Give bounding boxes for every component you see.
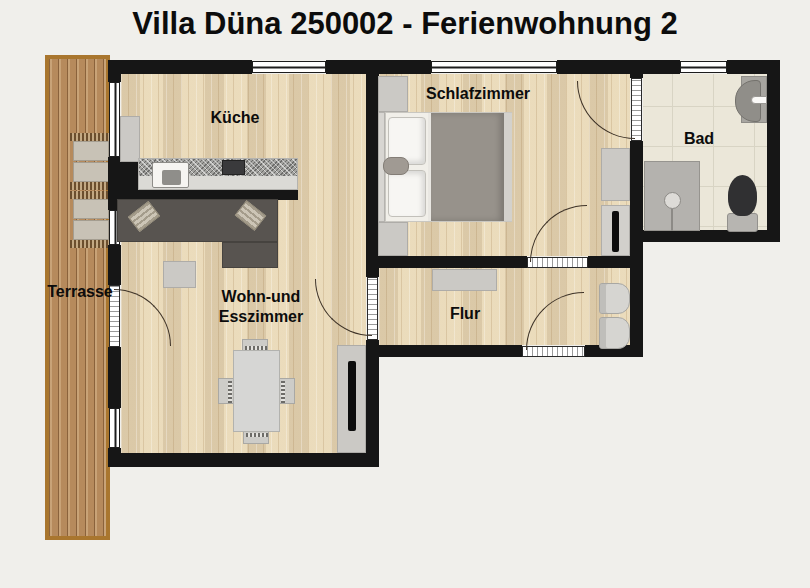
bedroom-label: Schlafzimmer <box>408 84 548 104</box>
dining-chair <box>279 378 295 404</box>
cooktop <box>222 160 245 175</box>
sofa-chaise <box>222 242 278 268</box>
window <box>109 408 120 448</box>
living-label-line2: Esszimmer <box>191 307 331 327</box>
outdoor-sofa <box>70 191 112 248</box>
bed-pillow <box>388 170 426 217</box>
wall <box>108 60 121 82</box>
kitchen-cabinet <box>120 116 140 162</box>
dining-chair <box>243 431 269 444</box>
bed-footboard <box>504 113 512 221</box>
wall <box>366 340 379 467</box>
nightstand <box>378 222 408 256</box>
wall <box>630 60 643 78</box>
nightstand <box>378 76 408 112</box>
coffee-table <box>163 261 196 288</box>
dining-table <box>233 350 280 432</box>
plan-title: Villa Düna 250002 - Ferienwohnung 2 <box>0 6 810 42</box>
tv <box>348 361 356 431</box>
window <box>252 61 326 73</box>
window <box>431 61 557 73</box>
shower <box>644 161 700 231</box>
bed <box>378 112 512 222</box>
kitchen-label: Küche <box>185 108 285 128</box>
bed-blanket <box>428 113 504 221</box>
faucet <box>751 96 767 104</box>
wall <box>108 60 252 74</box>
wall <box>630 230 780 242</box>
outdoor-sofa-cushion <box>73 220 109 240</box>
shower-head <box>664 192 681 209</box>
wall <box>630 141 643 357</box>
wall <box>108 453 378 467</box>
living-label: Wohn-und Esszimmer <box>191 287 331 327</box>
outdoor-sofa-frame <box>70 133 112 141</box>
dining-chair <box>218 378 234 404</box>
outdoor-sofa <box>70 133 112 190</box>
kitchen-sink-basin <box>162 170 181 185</box>
kitchen-sink <box>152 162 189 188</box>
wardrobe <box>601 148 630 201</box>
wall <box>366 256 527 268</box>
outdoor-sofa-cushion <box>73 162 109 182</box>
hallway-chair <box>599 317 630 349</box>
hallway-label: Flur <box>425 304 505 324</box>
wall <box>377 345 522 357</box>
living-label-line1: Wohn-und <box>191 287 331 307</box>
wall <box>108 347 121 408</box>
outdoor-sofa-cushion <box>73 141 109 161</box>
wall <box>108 245 121 285</box>
outdoor-sofa-cushion <box>73 199 109 219</box>
tv-sideboard <box>337 345 366 453</box>
wall <box>557 60 680 74</box>
outdoor-sofa-frame <box>70 182 112 190</box>
bedroom-tv <box>612 211 619 252</box>
window <box>109 82 120 157</box>
bed-bolster-pillow <box>383 157 409 175</box>
floor-plan-page: { "title": "Villa Düna 250002 - Ferienwo… <box>0 0 810 588</box>
window <box>680 61 727 73</box>
bathroom-label: Bad <box>669 129 729 149</box>
terrace-label: Terrasse <box>38 282 122 302</box>
hallway-chair <box>599 283 630 314</box>
toilet <box>728 175 757 216</box>
hallway-sideboard <box>432 269 497 291</box>
outdoor-sofa-frame <box>70 191 112 199</box>
dresser <box>601 205 630 256</box>
shower-hose <box>671 209 673 231</box>
outdoor-sofa-frame <box>70 240 112 248</box>
wall <box>767 60 780 242</box>
